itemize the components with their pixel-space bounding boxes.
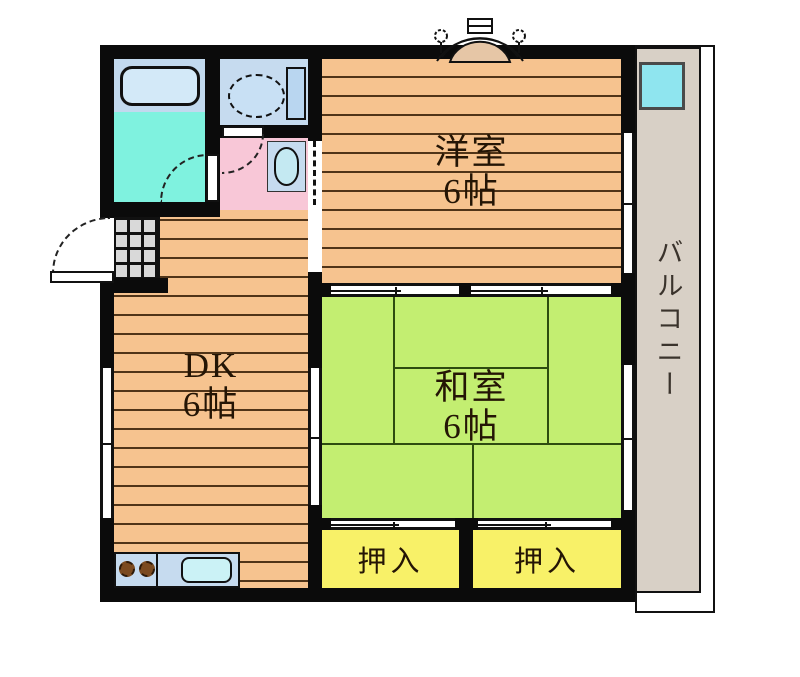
room-japanese-size: 6帖 xyxy=(443,407,500,446)
wall-west-japanese-a xyxy=(322,283,331,297)
washbasin-bowl xyxy=(274,147,299,186)
wall-closet-left xyxy=(308,530,322,588)
opening-hall-western xyxy=(308,205,322,272)
entrance-door-leaf xyxy=(50,271,114,283)
stove-burner-icon xyxy=(139,561,155,577)
closet-left-door xyxy=(331,518,455,530)
room-dk-size: 6帖 xyxy=(183,385,240,424)
room-dk-label: DK 6帖 xyxy=(114,285,308,485)
closet-right-door xyxy=(478,518,611,530)
window-dk-left xyxy=(100,368,114,518)
fusuma-western-japanese-left xyxy=(331,283,459,297)
closet-right-text: 押入 xyxy=(514,538,580,580)
balcony-floor: バルコニー xyxy=(635,47,701,593)
room-western-size: 6帖 xyxy=(443,172,500,211)
wall-west-japanese-c xyxy=(611,283,621,297)
wall-dk-japanese-upper xyxy=(308,297,322,368)
room-japanese-name: 和室 xyxy=(434,368,508,407)
sliding-door-dk-japanese xyxy=(308,368,322,505)
wall-bath-bottom xyxy=(100,202,220,217)
balcony-label: バルコニー xyxy=(649,238,688,403)
partition-dashed-washroom xyxy=(308,141,322,205)
fusuma-western-japanese-right xyxy=(471,283,611,297)
balcony-washer-pan xyxy=(639,62,685,110)
wall-dk-japanese-lower xyxy=(308,505,322,530)
window-japanese-balcony xyxy=(621,365,635,510)
room-dk-name: DK xyxy=(184,346,239,385)
room-western-label: 洋室 6帖 xyxy=(322,72,621,272)
wall-western-left-lower xyxy=(308,272,322,297)
room-western-name: 洋室 xyxy=(434,133,508,172)
wall-western-left-upper xyxy=(308,59,322,141)
closet-left-label: 押入 xyxy=(322,530,459,588)
floor-plan: バルコニー xyxy=(0,0,800,677)
toilet-bowl xyxy=(228,74,285,118)
bathtub xyxy=(120,66,200,106)
bathroom-door-leaf xyxy=(206,154,219,202)
bay-window-icon xyxy=(428,13,532,63)
kitchen-counter-divider xyxy=(156,552,158,588)
wall-japanese-closet-a xyxy=(322,518,331,530)
closet-left-text: 押入 xyxy=(357,538,423,580)
wall-closet-divider xyxy=(459,530,473,588)
entrance-door-arc xyxy=(52,217,110,273)
closet-right-label: 押入 xyxy=(473,530,621,588)
wall-japanese-closet-c xyxy=(611,518,621,530)
stove-burner-icon xyxy=(119,561,135,577)
wall-west-japanese-b xyxy=(459,283,471,297)
toilet-tank xyxy=(286,67,306,120)
window-western-balcony xyxy=(621,133,635,273)
room-japanese-label: 和室 6帖 xyxy=(322,307,621,507)
wall-japanese-closet-b xyxy=(455,518,478,530)
kitchen-sink xyxy=(181,557,232,583)
